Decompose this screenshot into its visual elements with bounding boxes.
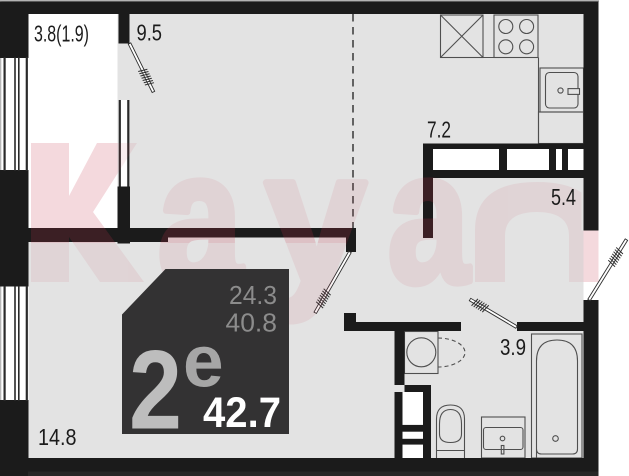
svg-text:9.5: 9.5 [137,20,163,46]
svg-text:40.8: 40.8 [226,310,278,338]
svg-text:3.9: 3.9 [500,334,526,360]
svg-text:14.8: 14.8 [38,424,77,450]
svg-text:5.4: 5.4 [551,184,576,210]
svg-text:42.7: 42.7 [203,389,281,437]
svg-text:3.8(1.9): 3.8(1.9) [34,21,89,47]
svg-text:2: 2 [129,328,182,453]
svg-text:24.3: 24.3 [229,282,277,310]
svg-text:7.2: 7.2 [427,117,451,143]
